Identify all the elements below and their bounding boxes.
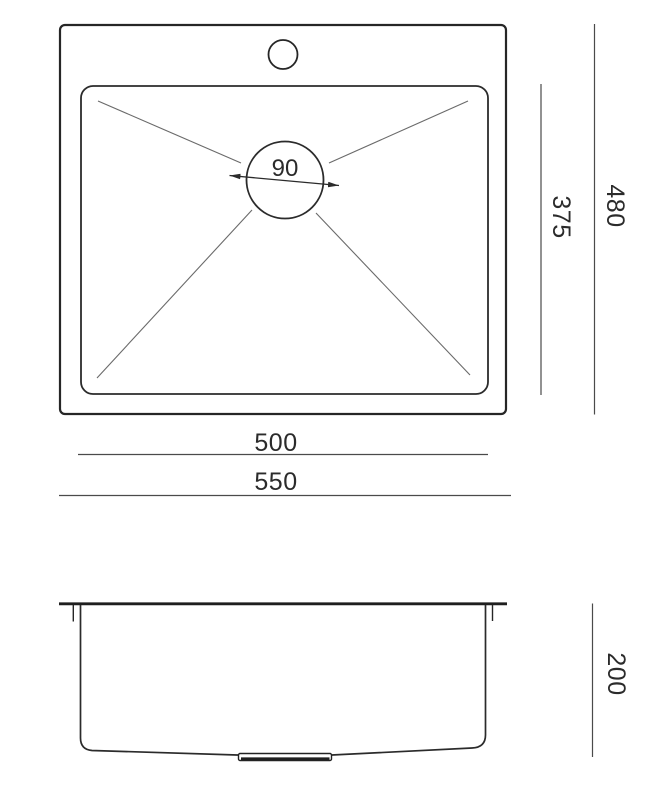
faucet-hole <box>269 40 298 69</box>
dim-label-overall-width: 550 <box>254 468 297 496</box>
sink-drawing-svg: 90 375 480 500 550 <box>0 0 672 800</box>
top-view-dimensions: 375 480 500 550 <box>59 24 629 496</box>
dim-label-bowl-height: 200 <box>602 652 630 695</box>
dim-label-bowl-width: 500 <box>254 429 297 457</box>
bowl-slope-line-top-left <box>98 101 241 163</box>
dim-label-bowl-depth: 375 <box>547 195 575 238</box>
bowl-outline <box>81 86 488 394</box>
sink-rim-outline <box>60 25 506 414</box>
bowl-slope-line-top-right <box>329 101 468 163</box>
side-view <box>59 604 507 761</box>
bowl-slope-line-bottom-right <box>316 213 470 375</box>
top-view: 90 <box>60 25 506 414</box>
bowl-slope-line-bottom-left <box>97 210 252 378</box>
bowl-section-outline <box>81 605 486 755</box>
technical-drawing-canvas: 90 375 480 500 550 <box>0 0 672 800</box>
drain-diameter-label: 90 <box>272 155 299 182</box>
dim-label-overall-depth: 480 <box>601 184 629 227</box>
side-view-dimensions: 200 <box>593 604 631 758</box>
